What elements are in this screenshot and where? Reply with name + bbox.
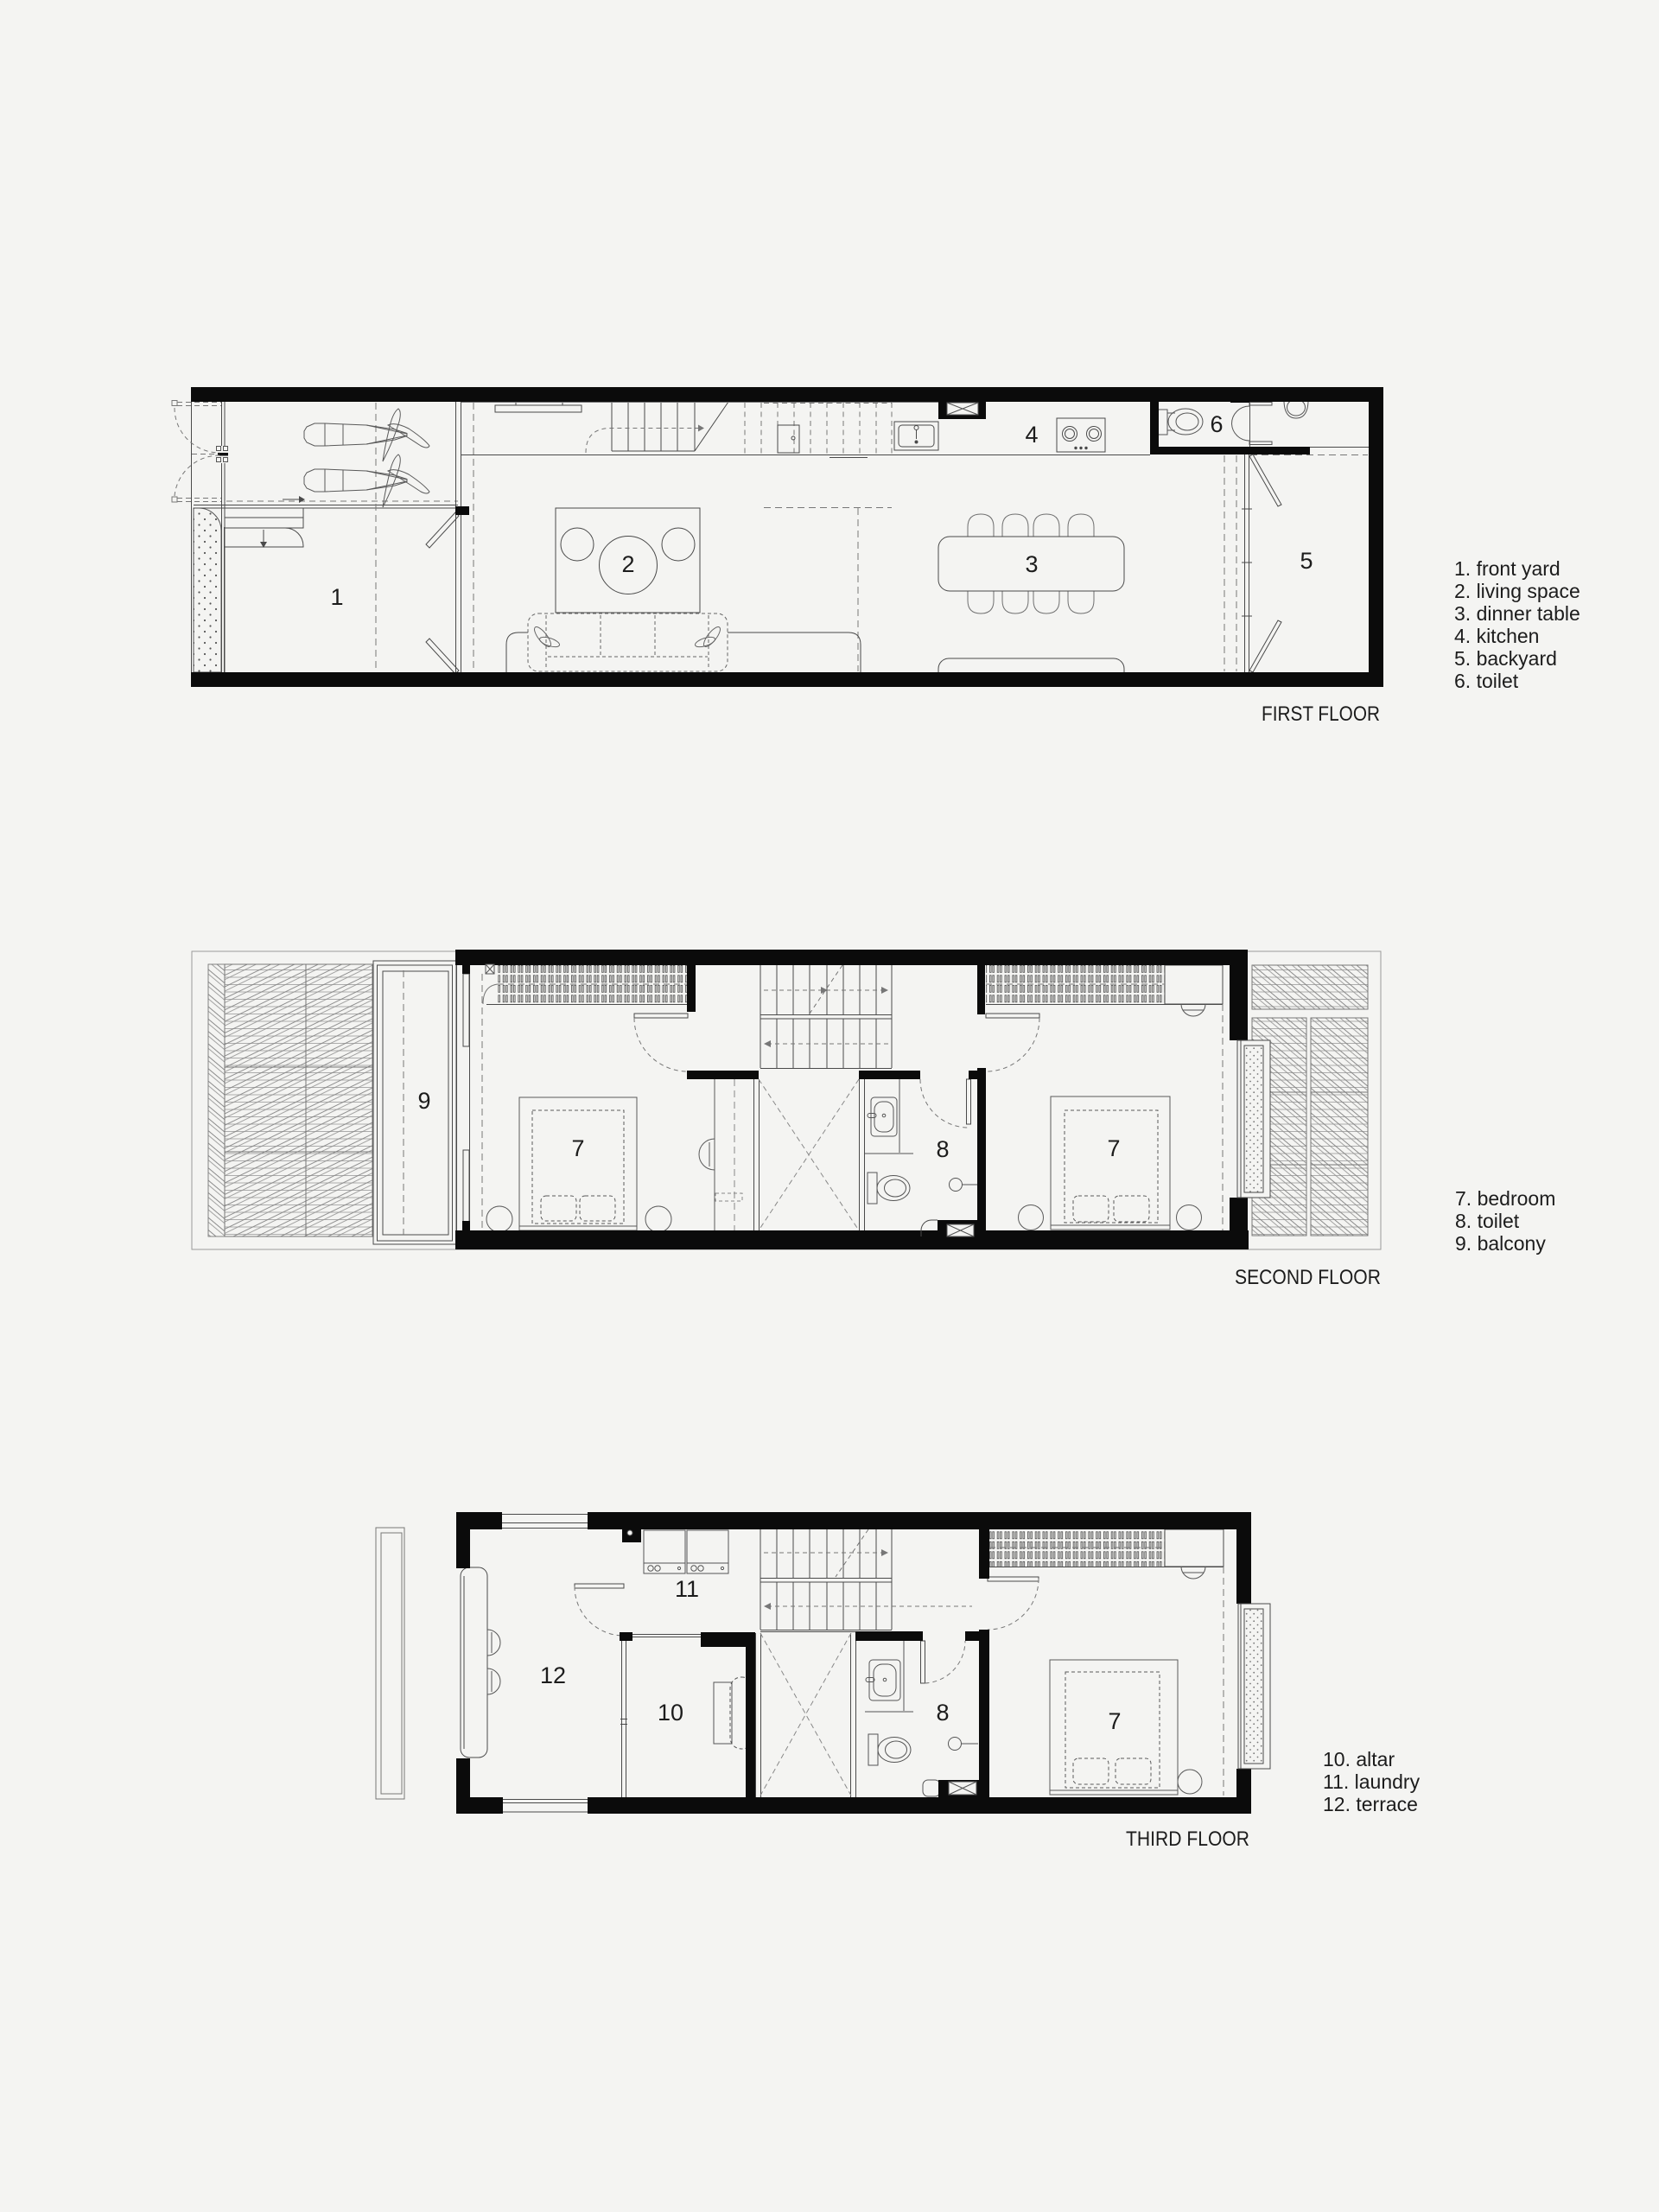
svg-text:11. laundry: 11. laundry <box>1323 1770 1421 1793</box>
svg-text:10: 10 <box>658 1700 683 1726</box>
svg-text:8: 8 <box>936 1700 949 1726</box>
svg-text:3: 3 <box>1025 551 1038 577</box>
svg-text:4. kitchen: 4. kitchen <box>1454 625 1539 647</box>
svg-text:5: 5 <box>1300 548 1313 574</box>
svg-text:9. balcony: 9. balcony <box>1455 1232 1546 1255</box>
svg-text:12: 12 <box>540 1662 566 1688</box>
svg-text:6: 6 <box>1210 411 1223 437</box>
svg-text:4: 4 <box>1025 422 1038 448</box>
svg-text:FIRST FLOOR: FIRST FLOOR <box>1262 702 1380 726</box>
svg-text:1. front yard: 1. front yard <box>1454 557 1560 580</box>
svg-text:5. backyard: 5. backyard <box>1454 647 1557 670</box>
svg-text:6. toilet: 6. toilet <box>1454 670 1519 692</box>
svg-text:12. terrace: 12. terrace <box>1323 1793 1418 1815</box>
svg-text:7: 7 <box>571 1135 584 1161</box>
svg-text:7: 7 <box>1108 1708 1121 1734</box>
svg-text:11: 11 <box>675 1576 699 1602</box>
svg-text:8: 8 <box>936 1136 949 1162</box>
svg-text:THIRD FLOOR: THIRD FLOOR <box>1126 1827 1249 1851</box>
svg-text:8. toilet: 8. toilet <box>1455 1210 1520 1232</box>
svg-text:7: 7 <box>1107 1135 1120 1161</box>
svg-text:3. dinner table: 3. dinner table <box>1454 602 1580 625</box>
svg-text:1: 1 <box>330 584 343 610</box>
svg-text:2. living space: 2. living space <box>1454 580 1580 602</box>
svg-text:9: 9 <box>417 1088 430 1114</box>
svg-text:2: 2 <box>621 551 634 577</box>
svg-text:SECOND FLOOR: SECOND FLOOR <box>1235 1266 1381 1289</box>
svg-text:7. bedroom: 7. bedroom <box>1455 1187 1555 1210</box>
svg-text:10. altar: 10. altar <box>1323 1748 1395 1770</box>
